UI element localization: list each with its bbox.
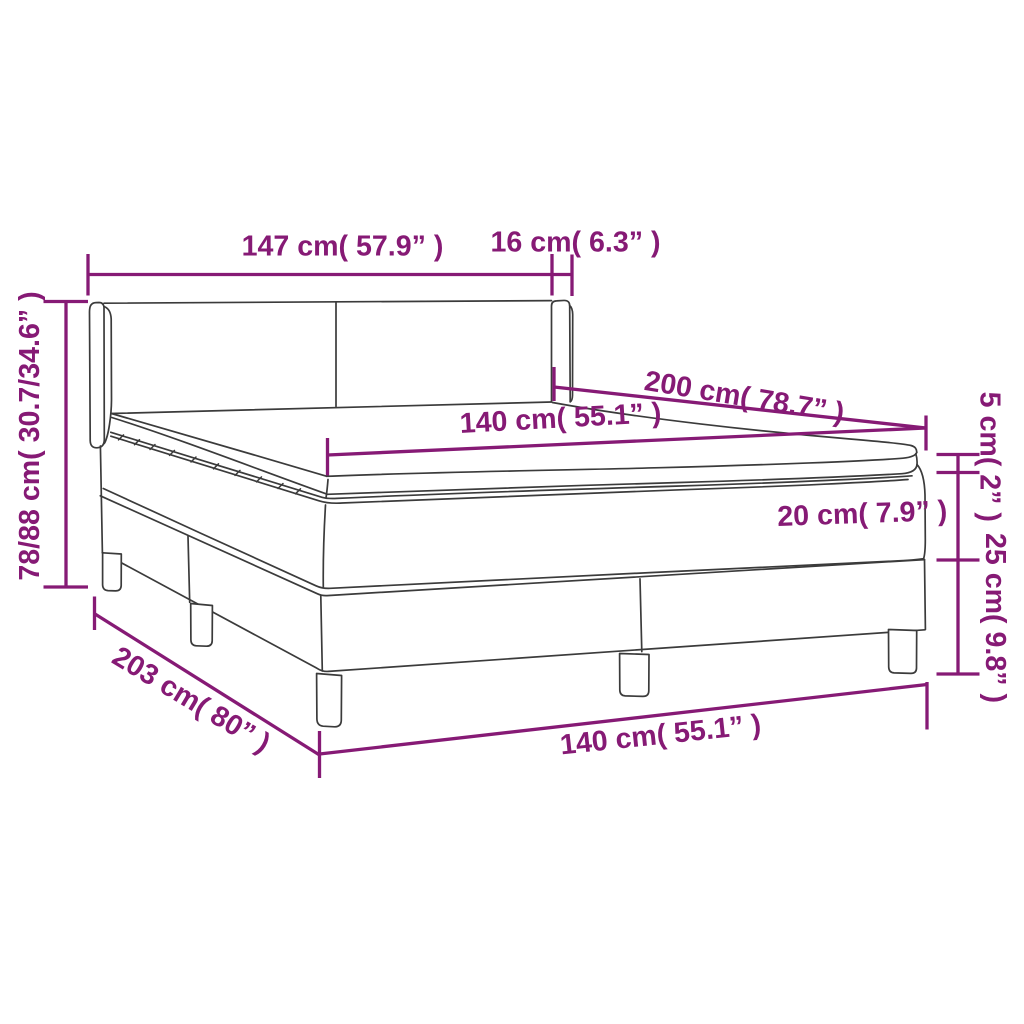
svg-text:25 cm( 9.8” ): 25 cm( 9.8” ) <box>979 533 1011 703</box>
svg-text:20 cm( 7.9” ): 20 cm( 7.9” ) <box>777 495 948 533</box>
svg-text:5 cm( 2” ): 5 cm( 2” ) <box>973 392 1005 522</box>
svg-text:78/88 cm( 30.7/34.6” ): 78/88 cm( 30.7/34.6” ) <box>14 291 46 580</box>
svg-text:147 cm( 57.9” ): 147 cm( 57.9” ) <box>242 231 444 263</box>
svg-text:16 cm( 6.3” ): 16 cm( 6.3” ) <box>490 227 660 259</box>
